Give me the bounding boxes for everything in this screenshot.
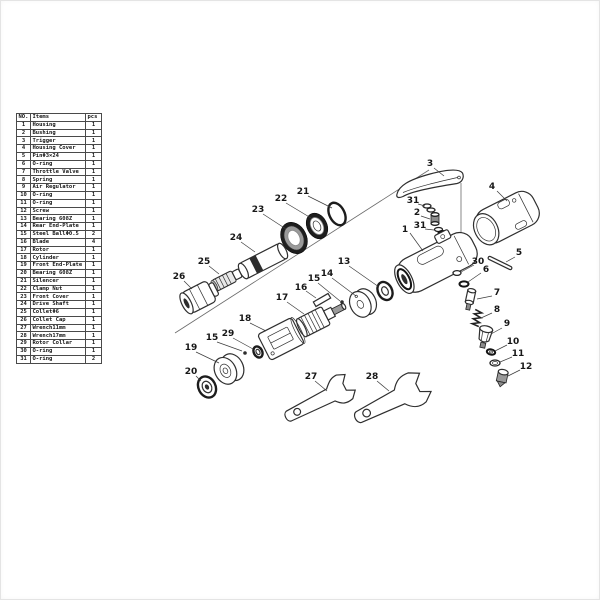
part-steel-ball-front (243, 351, 247, 355)
leader-line-2 (421, 216, 430, 219)
part-air-regulator (476, 325, 493, 349)
part-label-3: 3 (427, 159, 433, 169)
leader-line-19 (196, 352, 219, 363)
leader-line-11 (500, 357, 512, 362)
part-drive-shaft (236, 242, 289, 280)
part-oring-30 (453, 271, 461, 276)
leader-line-14 (332, 278, 356, 296)
part-label-2: 2 (414, 208, 420, 218)
leader-line-7 (477, 296, 492, 299)
part-trigger (397, 170, 463, 197)
leader-line-31 (425, 229, 434, 230)
part-label-22: 22 (275, 194, 288, 204)
part-housing-cover (467, 187, 543, 250)
part-label-31: 31 (414, 221, 427, 231)
part-label-20: 20 (185, 367, 198, 377)
part-spring (472, 309, 482, 326)
leader-line-29 (233, 338, 253, 349)
part-label-29: 29 (222, 329, 235, 339)
part-label-12: 12 (520, 362, 533, 372)
leader-line-26 (184, 281, 192, 289)
part-rear-end-plate (345, 285, 380, 321)
part-label-23: 23 (252, 205, 265, 215)
leader-line-10 (495, 345, 507, 351)
part-wrench-small (279, 370, 359, 430)
leader-line-5 (506, 257, 515, 262)
part-bushing (431, 213, 439, 226)
leader-line-8 (481, 313, 492, 318)
leader-line-27 (315, 381, 327, 391)
part-oring-31-upper (423, 204, 435, 212)
part-label-25: 25 (198, 257, 211, 267)
leader-line-17 (287, 302, 304, 314)
part-label-27: 27 (305, 372, 318, 382)
part-label-8: 8 (494, 305, 500, 315)
leader-line-24 (241, 242, 255, 252)
leader-line-15 (217, 342, 242, 351)
part-label-9: 9 (504, 319, 510, 329)
part-label-16: 16 (295, 283, 308, 293)
exploded-diagram: 1234567891011121314151617181920212223242… (0, 0, 600, 600)
leader-line-1 (410, 233, 423, 251)
leader-line-28 (377, 381, 389, 391)
part-label-11: 11 (512, 349, 525, 359)
part-bearing-rear (374, 279, 395, 302)
part-label-14: 14 (321, 269, 334, 279)
part-label-10: 10 (507, 337, 520, 347)
part-screw (495, 369, 508, 388)
part-label-21: 21 (297, 187, 310, 197)
part-wrench-large (348, 367, 435, 434)
part-label-26: 26 (173, 272, 186, 282)
part-label-1: 1 (402, 225, 408, 235)
part-blade (313, 293, 330, 306)
part-label-28: 28 (366, 372, 379, 382)
part-bearing-front (194, 373, 219, 400)
part-label-4: 4 (489, 182, 495, 192)
part-label-18: 18 (239, 314, 252, 324)
part-label-13: 13 (338, 257, 351, 267)
part-label-30: 30 (472, 257, 485, 267)
part-oring-10 (486, 349, 495, 356)
part-label-15: 15 (206, 333, 219, 343)
leader-line-21 (308, 196, 332, 208)
leader-line-12 (508, 370, 520, 376)
part-label-19: 19 (185, 343, 198, 353)
leader-line-6 (468, 273, 481, 282)
part-housing (386, 221, 482, 298)
leader-line-23 (263, 214, 286, 229)
part-label-7: 7 (494, 288, 500, 298)
part-throttle-valve (464, 288, 476, 311)
part-label-24: 24 (230, 233, 243, 243)
leader-line-13 (349, 266, 379, 287)
exploded-parts-sheet: NO. Items pcs 1Housing12Bushing13Trigger… (0, 0, 600, 600)
part-label-5: 5 (516, 248, 522, 258)
part-label-15: 15 (308, 274, 321, 284)
leader-line-22 (286, 203, 311, 218)
part-rotor-collar (252, 345, 265, 359)
part-label-31: 31 (407, 196, 420, 206)
part-oring-11 (490, 360, 500, 366)
part-pin (488, 256, 513, 270)
leader-line-18 (250, 323, 266, 331)
part-oring-6 (460, 281, 469, 286)
leader-line-16 (306, 291, 316, 298)
part-label-17: 17 (276, 293, 289, 303)
leader-line-25 (209, 266, 219, 274)
